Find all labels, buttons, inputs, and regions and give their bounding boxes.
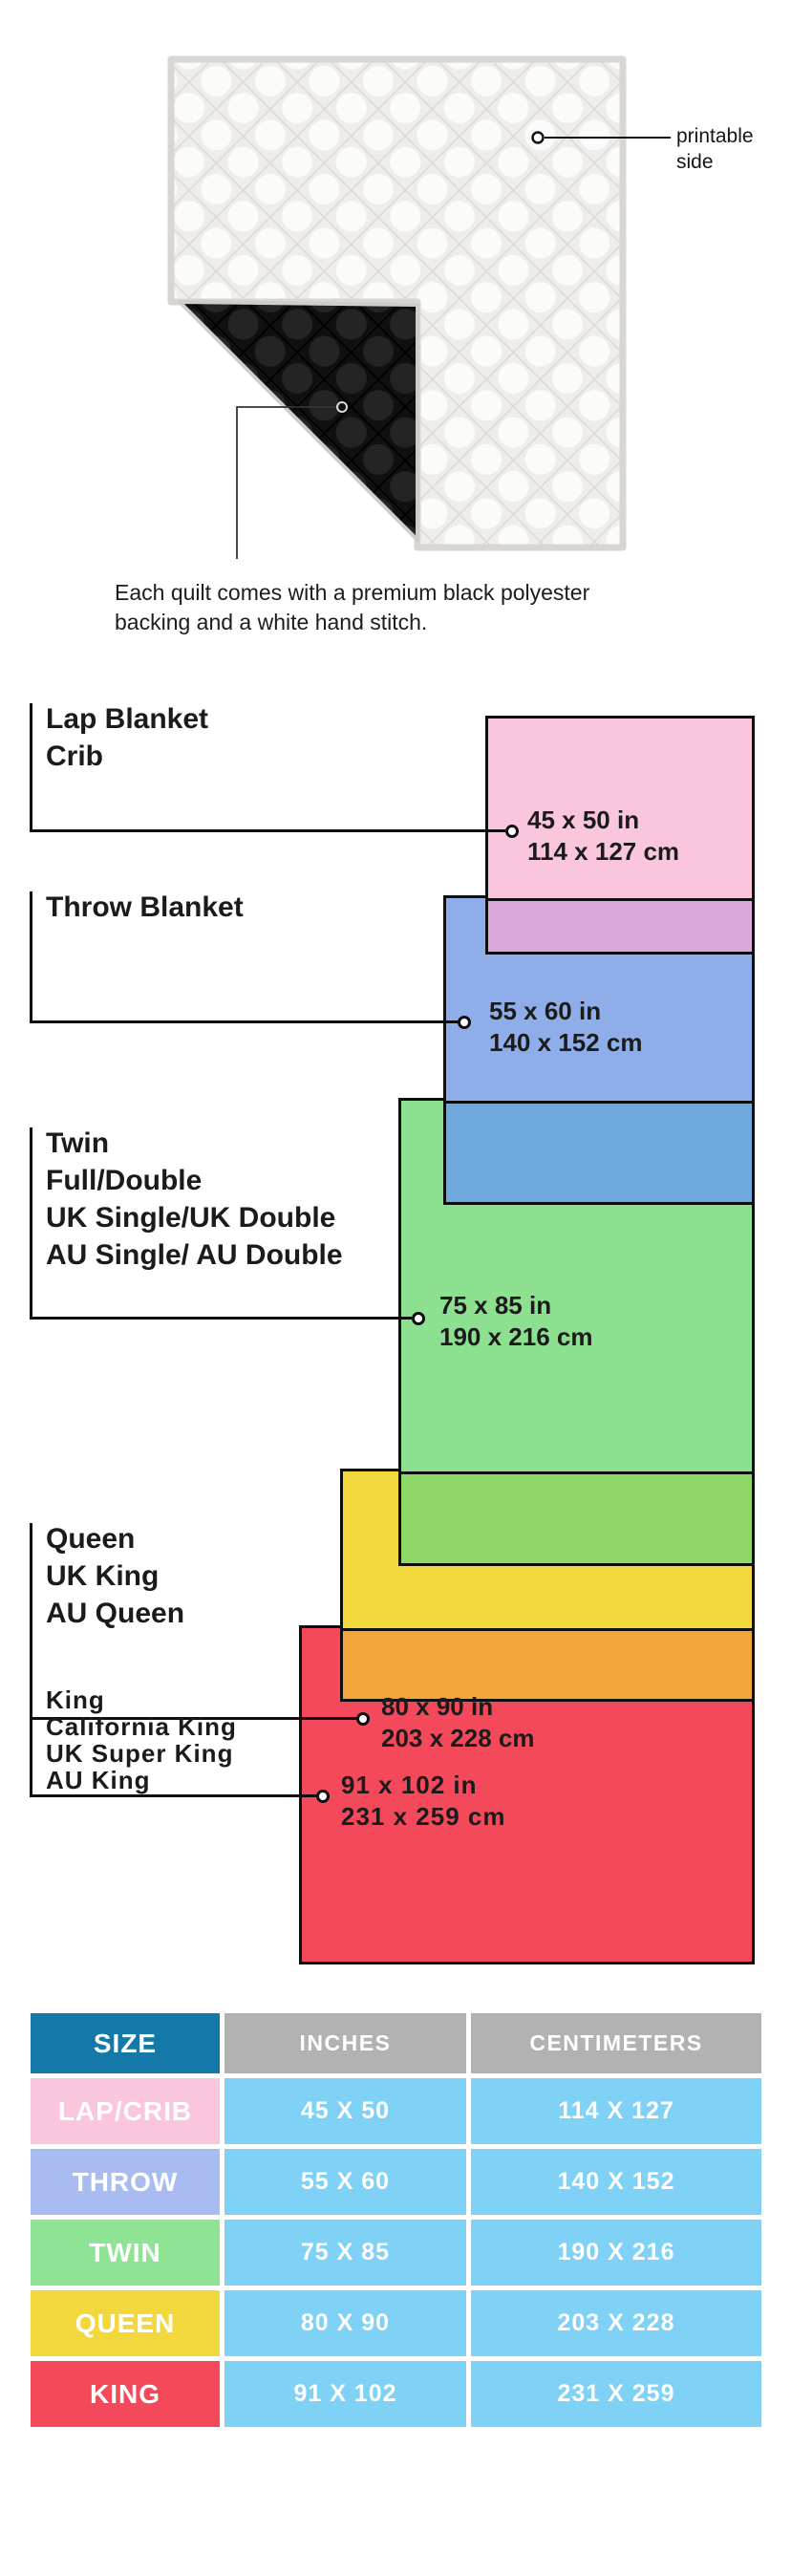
table-row-twin-size: TWIN <box>31 2220 220 2286</box>
quilt-size-infographic: printable side Each quilt comes with a p… <box>0 0 791 2576</box>
printable-side-label: printable side <box>676 123 791 175</box>
table-row-queen-cm: 203 X 228 <box>471 2290 761 2356</box>
printable-side-marker-circle <box>533 133 544 143</box>
callout-vline-throw <box>30 891 32 1022</box>
quilt-black-backing-flap <box>180 302 417 540</box>
measure-lap-crib: 45 x 50 in 114 x 127 cm <box>527 805 679 868</box>
table-header-centimeters: CENTIMETERS <box>471 2013 761 2073</box>
callout-dot-twin <box>412 1312 425 1325</box>
size-label-lap-crib: Lap Blanket Crib <box>46 700 208 775</box>
measure-twin: 75 x 85 in 190 x 216 cm <box>439 1290 592 1353</box>
table-row-throw-inches: 55 X 60 <box>224 2149 466 2215</box>
size-table: SIZE INCHES CENTIMETERS LAP/CRIB 45 X 50… <box>31 2013 761 2427</box>
size-label-queen: Queen UK King AU Queen <box>46 1520 184 1632</box>
table-row-throw-cm: 140 X 152 <box>471 2149 761 2215</box>
callout-dot-king <box>316 1790 330 1803</box>
callout-vline-king <box>30 1689 32 1796</box>
table-row-king-size: KING <box>31 2361 220 2427</box>
measure-throw: 55 x 60 in 140 x 152 cm <box>489 996 642 1059</box>
overlap-band-twin-over-queen <box>401 1471 752 1563</box>
callout-dot-throw <box>458 1016 471 1029</box>
table-row-queen-inches: 80 X 90 <box>224 2290 466 2356</box>
callout-hline-twin <box>30 1317 412 1320</box>
overlap-band-queen-over-king <box>343 1628 752 1699</box>
table-row-throw-size: THROW <box>31 2149 220 2215</box>
quilt-illustration <box>0 0 791 669</box>
overlap-band-throw-over-twin <box>446 1101 752 1202</box>
callout-hline-throw <box>30 1020 458 1023</box>
table-row-lap-size: LAP/CRIB <box>31 2078 220 2144</box>
quilt-caption-line1: Each quilt comes with a premium black po… <box>115 578 736 608</box>
table-row-lap-inches: 45 X 50 <box>224 2078 466 2144</box>
measure-king: 91 x 102 in 231 x 259 cm <box>341 1770 505 1833</box>
table-row-king-inches: 91 X 102 <box>224 2361 466 2427</box>
quilt-caption-line2: backing and a white hand stitch. <box>115 608 736 637</box>
size-label-throw: Throw Blanket <box>46 889 244 926</box>
overlap-band-lap-over-throw <box>488 898 752 952</box>
callout-dot-lap <box>505 825 519 838</box>
table-header-size: SIZE <box>31 2013 220 2073</box>
table-row-king-cm: 231 X 259 <box>471 2361 761 2427</box>
callout-vline-twin <box>30 1127 32 1319</box>
callout-dot-queen <box>356 1712 370 1726</box>
callout-hline-lap <box>30 829 505 832</box>
table-row-queen-size: QUEEN <box>31 2290 220 2356</box>
size-label-twin: Twin Full/Double UK Single/UK Double AU … <box>46 1125 343 1274</box>
size-label-king: King California King UK Super King AU Ki… <box>46 1686 237 1793</box>
callout-vline-lap <box>30 703 32 831</box>
measure-queen: 80 x 90 in 203 x 228 cm <box>381 1691 534 1754</box>
quilt-caption: Each quilt comes with a premium black po… <box>115 578 736 637</box>
table-header-inches: INCHES <box>224 2013 466 2073</box>
table-row-lap-cm: 114 X 127 <box>471 2078 761 2144</box>
table-row-twin-cm: 190 X 216 <box>471 2220 761 2286</box>
table-row-twin-inches: 75 X 85 <box>224 2220 466 2286</box>
callout-hline-king <box>30 1794 316 1797</box>
